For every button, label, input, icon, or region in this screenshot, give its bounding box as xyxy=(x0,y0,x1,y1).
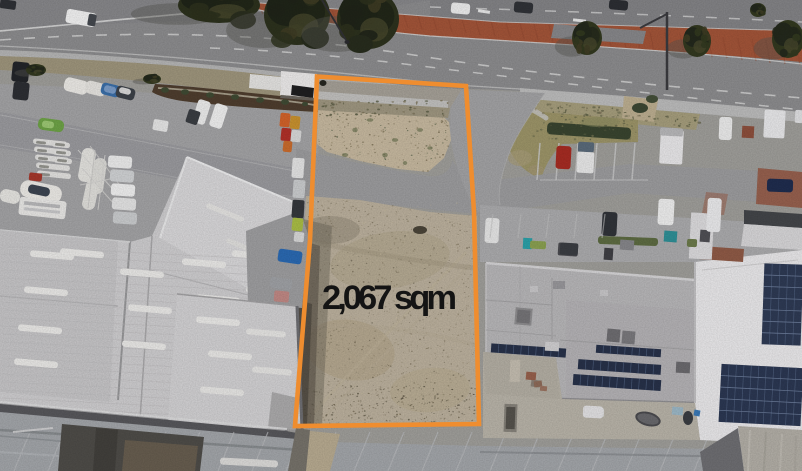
svg-text:2,067 sqm: 2,067 sqm xyxy=(322,279,457,317)
